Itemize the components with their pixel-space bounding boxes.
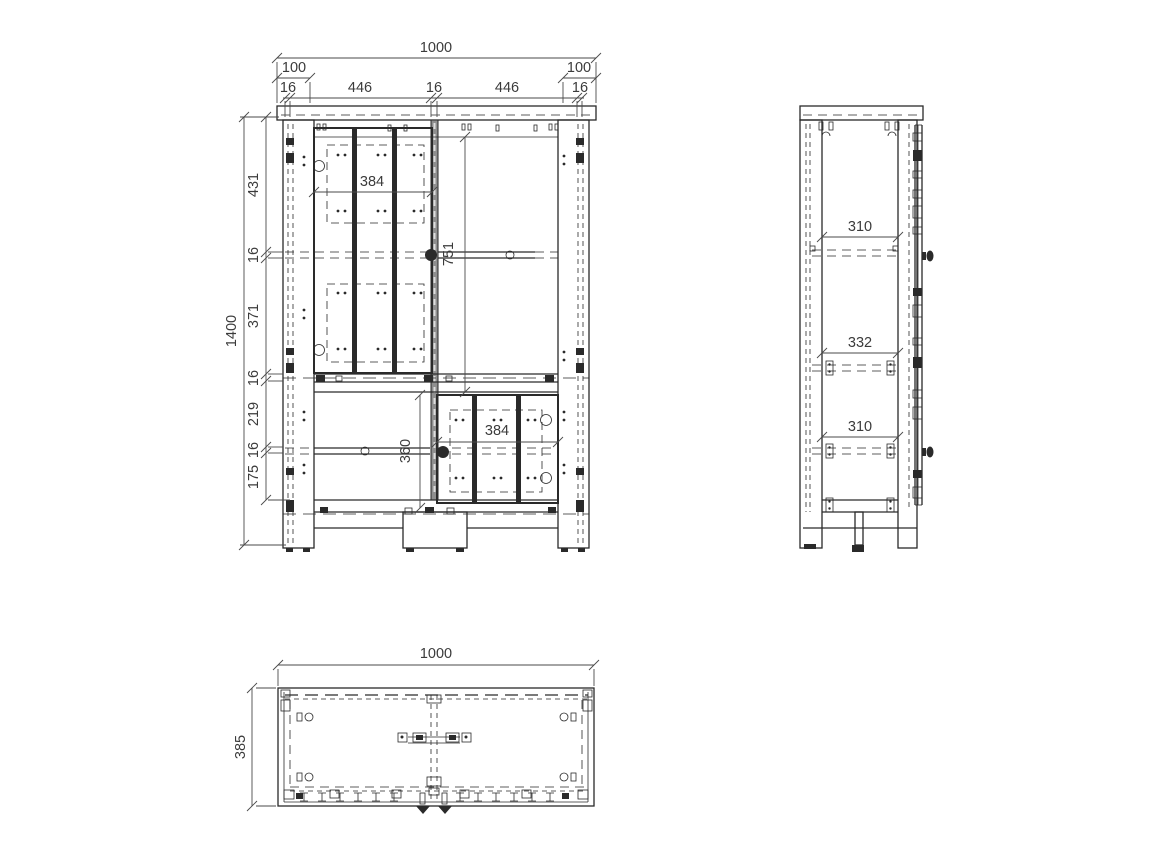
plan-corner-hardware: [281, 690, 592, 781]
plan-feet: [416, 793, 452, 814]
hinge-symbol: [314, 161, 325, 172]
side-top-board: [800, 106, 923, 120]
dim-front-chain-446a: 446: [348, 80, 372, 96]
dim-front-seg-175: 175: [246, 465, 262, 489]
front-bottom-structure: [283, 500, 589, 552]
plan-inner-lines: [284, 692, 588, 802]
dim-plan-overall-width: 1000: [420, 646, 452, 662]
dim-front-chain-16b: 16: [426, 80, 442, 96]
dim-side-clear-bottom: 310: [848, 419, 872, 435]
dim-front-overhang-right: 100: [567, 60, 591, 76]
plan-center-divider: [398, 695, 471, 800]
door-knob: [425, 249, 437, 261]
side-cam-fittings: [819, 122, 899, 136]
dim-side-clear-top: 310: [848, 219, 872, 235]
door-knob: [922, 447, 934, 458]
hinge-symbol: [314, 345, 325, 356]
side-view: 310 332 310: [800, 106, 934, 552]
dim-front-overall-width: 1000: [420, 40, 452, 56]
dim-front-lower-door-width: 384: [485, 423, 509, 439]
dim-front-chain-446b: 446: [495, 80, 519, 96]
dim-front-seg-371: 371: [246, 304, 262, 328]
front-upper-shelf: [285, 249, 558, 261]
front-view: 1000 100 100 16 446 16 446 16: [224, 40, 601, 552]
front-dimensions: 1000 100 100 16 446 16 446 16: [224, 40, 601, 550]
side-back-stile: [800, 120, 822, 549]
dim-front-upper-interior-height: 751: [441, 242, 457, 266]
plan-front-fittings-row: [284, 790, 588, 801]
front-left-stile: [283, 120, 314, 552]
side-door-profile: [913, 125, 934, 505]
front-lower-door: [437, 395, 558, 503]
side-dimensions: 310 332 310: [817, 219, 903, 442]
dim-front-seg-16c: 16: [246, 442, 262, 458]
drawing-sheet: 1000 100 100 16 446 16 446 16: [0, 0, 1152, 864]
door-knob: [922, 251, 934, 262]
front-right-stile: [558, 120, 589, 552]
technical-drawing-canvas: 1000 100 100 16 446 16 446 16: [0, 0, 1152, 864]
side-bottom-structure: [803, 498, 917, 552]
dim-front-seg-431: 431: [246, 173, 262, 197]
side-front-stile: [898, 120, 917, 548]
dim-plan-overall-depth: 385: [233, 735, 249, 759]
hinge-symbol: [541, 415, 552, 426]
dim-front-overhang-left: 100: [282, 60, 306, 76]
dim-side-clear-middle: 332: [848, 335, 872, 351]
dim-front-overall-height: 1400: [224, 315, 240, 347]
dim-front-seg-219: 219: [246, 402, 262, 426]
plan-dimensions: 1000 385: [233, 646, 599, 811]
dim-front-seg-16a: 16: [246, 247, 262, 263]
dim-front-chain-16c: 16: [572, 80, 588, 96]
front-top-board: [277, 106, 596, 120]
dim-front-seg-16b: 16: [246, 370, 262, 386]
dim-front-chain-16a: 16: [280, 80, 296, 96]
door-knob: [437, 446, 449, 458]
dim-front-upper-door-width: 384: [360, 174, 384, 190]
front-upper-door: [314, 128, 433, 373]
dim-front-lower-interior-height: 360: [398, 439, 414, 463]
top-view: 1000 385: [233, 646, 599, 814]
